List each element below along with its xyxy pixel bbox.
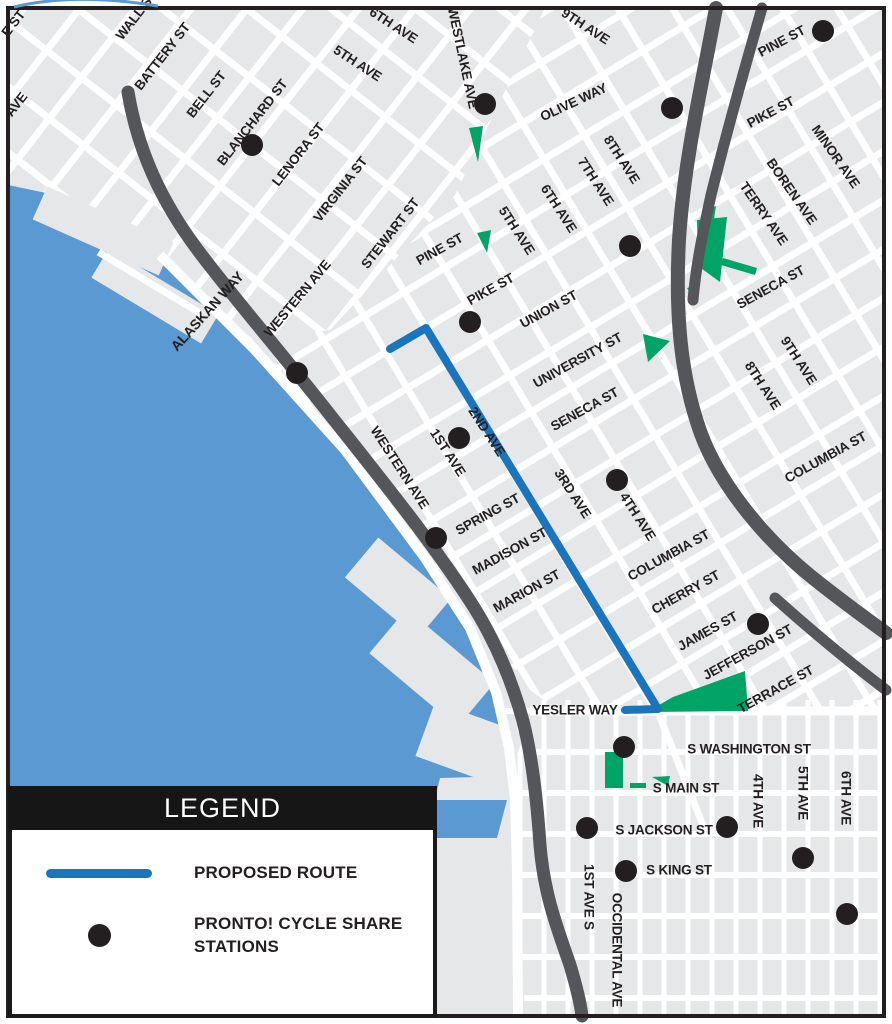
station-dot (747, 613, 769, 635)
station-dot (425, 527, 447, 549)
station-dot (661, 97, 683, 119)
park (630, 783, 646, 788)
street-label: 4TH AVE (750, 774, 765, 828)
legend: LEGEND PROPOSED ROUTE PRONTO! CYCLE SHAR… (8, 786, 437, 1018)
station-dot (812, 20, 834, 42)
street-label: S MAIN ST (653, 781, 720, 796)
map-figure: E STAVEWALL STBATTERY STBELL STBLANCHARD… (0, 0, 892, 1024)
street-label: OCCIDENTAL AVE (609, 893, 624, 1008)
station-swatch (88, 924, 111, 947)
station-dot (716, 816, 738, 838)
proposed-route-swatch (46, 869, 152, 878)
water-pier-slip (435, 800, 507, 838)
station-dot (286, 362, 308, 384)
street-label: S JACKSON ST (615, 823, 713, 838)
legend-route-label: PROPOSED ROUTE (194, 862, 414, 885)
street-label: S KING ST (646, 863, 713, 878)
station-swatch-cell (40, 924, 158, 947)
legend-row-stations: PRONTO! CYCLE SHARE STATIONS (40, 913, 433, 959)
station-dot (619, 235, 641, 257)
street-label: S WASHINGTON ST (687, 742, 811, 757)
street-label: 6TH AVE (838, 771, 853, 825)
station-dot (613, 736, 635, 758)
street-label: 1ST AVE S (581, 864, 596, 930)
station-dot (836, 903, 858, 925)
legend-stations-label: PRONTO! CYCLE SHARE STATIONS (194, 913, 414, 959)
legend-body: PROPOSED ROUTE PRONTO! CYCLE SHARE STATI… (8, 830, 437, 1018)
legend-row-route: PROPOSED ROUTE (40, 862, 433, 885)
station-dot (576, 817, 598, 839)
route-swatch-cell (40, 869, 158, 878)
legend-title: LEGEND (8, 786, 437, 830)
street-label: YESLER WAY (532, 703, 617, 718)
station-dot (792, 847, 814, 869)
station-dot (459, 311, 481, 333)
station-dot (615, 860, 637, 882)
park (605, 752, 623, 788)
station-dot (606, 469, 628, 491)
street-label: 5TH AVE (795, 766, 810, 820)
